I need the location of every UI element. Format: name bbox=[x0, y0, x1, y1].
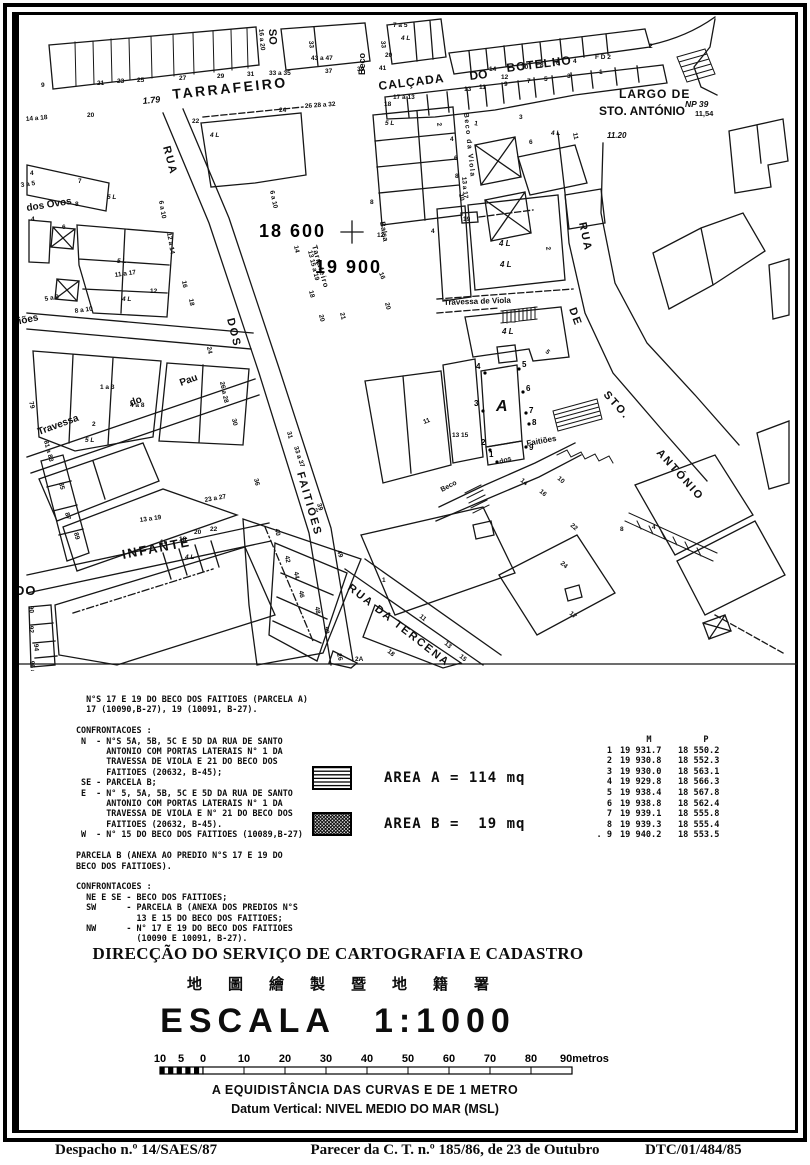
map-number: 13 bbox=[464, 86, 472, 93]
street-label: 11.20 bbox=[607, 131, 627, 140]
street-label: Travessa bbox=[36, 413, 80, 438]
scale-bar-checker bbox=[177, 1067, 181, 1074]
map-number: 25 bbox=[137, 77, 145, 84]
street-label: A bbox=[495, 398, 508, 415]
map-number: 46 bbox=[297, 590, 305, 599]
street-label: STO. ANTÓNIO bbox=[599, 103, 685, 118]
map-number: 44 bbox=[292, 571, 300, 580]
scale-bar-checker bbox=[164, 1067, 168, 1074]
coord-row: 419 929.818 566.3 bbox=[594, 777, 734, 788]
map-number: 2 bbox=[435, 122, 443, 127]
map-number: 22 bbox=[569, 522, 579, 532]
survey-point-dot bbox=[524, 411, 527, 414]
scale-tick-label: 40 bbox=[361, 1053, 373, 1065]
map-number: 11 bbox=[418, 613, 428, 623]
map-number: 4 L bbox=[209, 132, 219, 139]
scale-tick-label: 10 bbox=[238, 1053, 250, 1065]
map-number: 2 bbox=[544, 246, 552, 251]
map-number: 5 L bbox=[107, 194, 116, 201]
map-number: 43 a 47 bbox=[311, 55, 333, 62]
map-number: 3 bbox=[567, 73, 571, 80]
map-number: 5 L bbox=[117, 258, 126, 265]
point-label: 3 bbox=[474, 399, 479, 408]
map-number: 10 bbox=[521, 64, 529, 71]
scale-bar-checker bbox=[190, 1067, 194, 1074]
footer-parecer: Parecer da C. T. n.º 185/86, de 23 de Ou… bbox=[255, 1142, 655, 1159]
map-number: 79 bbox=[27, 401, 36, 410]
scale-bar-checker bbox=[194, 1067, 198, 1074]
map-number: 1 bbox=[474, 120, 479, 128]
street-label: Travessa de Viola bbox=[444, 296, 512, 307]
legend-row-area-b: AREA B = 19 mq bbox=[312, 812, 582, 836]
map-number: 22 bbox=[192, 118, 200, 125]
map-number: 26 bbox=[335, 653, 344, 662]
map-number: 26 a 28 bbox=[218, 381, 229, 404]
street-label: TARRAFEIRO bbox=[172, 74, 289, 102]
map-number: 21 bbox=[97, 80, 105, 87]
survey-point-dot bbox=[517, 367, 520, 370]
map-number: 24 bbox=[559, 560, 569, 570]
map-labels: TARRAFEIRO1.79CALÇADADOBOTELHOLARGO DEST… bbox=[19, 22, 714, 671]
cadastral-map: TARRAFEIRO1.79CALÇADADOBOTELHOLARGO DEST… bbox=[19, 15, 797, 671]
map-number: 13 bbox=[443, 640, 453, 650]
coord-row: 119 931.718 550.2 bbox=[594, 746, 734, 757]
map-number: 22 bbox=[210, 526, 218, 533]
map-number: 6 bbox=[556, 60, 560, 67]
map-number: 13 a 19 bbox=[139, 514, 162, 524]
map-number: 6 bbox=[454, 155, 458, 162]
map-number: 12 a 14 bbox=[165, 232, 176, 255]
map-number: 10 bbox=[556, 475, 566, 485]
scale-title: ESCALA1:1000 bbox=[8, 1002, 668, 1041]
point-label: 4 bbox=[476, 362, 481, 371]
map-number: 4 bbox=[30, 170, 34, 177]
map-number: 12 bbox=[501, 74, 509, 81]
survey-point-dot bbox=[483, 371, 486, 374]
col-header-p: P bbox=[678, 735, 734, 746]
map-number: 42 bbox=[283, 555, 291, 564]
map-number: 87 bbox=[63, 512, 72, 521]
scale-bar-checker bbox=[186, 1067, 190, 1074]
map-number: 6 a 10 bbox=[157, 200, 167, 219]
map-number: 18 bbox=[179, 536, 187, 543]
coord-row: 619 938.818 562.4 bbox=[594, 799, 734, 810]
map-number: 3 a 5 bbox=[20, 180, 36, 189]
point-label: 7 bbox=[529, 406, 534, 415]
map-number: 14 bbox=[519, 477, 529, 487]
cadastral-sheet: TARRAFEIRO1.79CALÇADADOBOTELHOLARGO DEST… bbox=[0, 0, 810, 1165]
organization-title-chinese: 地圖繪製暨地籍署 bbox=[8, 973, 668, 994]
map-number: 94 bbox=[32, 644, 40, 652]
map-number: 2A bbox=[355, 656, 364, 663]
map-number: 92 bbox=[27, 626, 35, 634]
map-number: 16 a 20 bbox=[257, 29, 266, 52]
street-label: SO bbox=[266, 29, 279, 46]
map-number: 27 bbox=[179, 75, 187, 82]
scale-bar-checker bbox=[160, 1067, 164, 1074]
street-label: 11,54 bbox=[695, 109, 714, 118]
area-a-label: AREA A = 114 mq bbox=[384, 770, 525, 786]
map-number: 4 bbox=[573, 58, 577, 65]
coord-row: 819 939.318 555.4 bbox=[594, 820, 734, 831]
map-number: 50 bbox=[322, 626, 330, 635]
map-number: 48 bbox=[313, 606, 321, 615]
map-number: 21 bbox=[338, 312, 347, 321]
area-b-label: AREA B = 19 mq bbox=[384, 816, 525, 832]
scale-tick-label: 60 bbox=[443, 1053, 455, 1065]
map-number: 5 a 9 bbox=[44, 293, 60, 302]
map-number: 13 15 bbox=[452, 432, 469, 439]
street-label: DE bbox=[566, 306, 584, 328]
legend-row-area-a: AREA A = 114 mq bbox=[312, 766, 582, 790]
map-number: 11 bbox=[422, 417, 431, 426]
point-label: 2 bbox=[481, 438, 486, 447]
map-number: 20 bbox=[385, 52, 393, 59]
map-number: 33 bbox=[379, 41, 387, 49]
map-number: F D 2 bbox=[595, 54, 611, 61]
survey-point-dot bbox=[521, 390, 524, 393]
map-number: 31 bbox=[285, 431, 294, 440]
area-a-hatch-swatch bbox=[312, 766, 352, 790]
scale-bar-checker bbox=[173, 1067, 177, 1074]
map-number: 96 a bbox=[28, 661, 36, 671]
street-label: CALÇADA bbox=[378, 71, 446, 93]
survey-point-dot bbox=[527, 422, 530, 425]
title-block: DIRECÇÃO DO SERVIÇO DE CARTOGRAFIA E CAD… bbox=[8, 944, 668, 1041]
street-label: DO bbox=[19, 583, 37, 598]
scale-bar: 1050102030405060708090metros bbox=[148, 1048, 628, 1082]
map-number: 23 bbox=[117, 78, 125, 85]
map-number: 90 bbox=[27, 606, 35, 614]
map-number: 9 bbox=[504, 81, 508, 88]
map-number: 4 bbox=[431, 228, 435, 235]
street-label: dos Ovos bbox=[26, 196, 73, 214]
map-number: 39 bbox=[357, 66, 365, 73]
survey-point-dot bbox=[524, 445, 527, 448]
coord-row: . 919 940.218 553.5 bbox=[594, 830, 734, 841]
survey-point-dot bbox=[481, 409, 484, 412]
map-number: 26 28 a 32 bbox=[305, 101, 337, 110]
coord-row: 219 930.818 552.3 bbox=[594, 756, 734, 767]
map-number: 89 bbox=[72, 532, 81, 541]
organization-title: DIRECÇÃO DO SERVIÇO DE CARTOGRAFIA E CAD… bbox=[8, 944, 668, 964]
map-number: 7 a 5 bbox=[393, 22, 408, 29]
map-number: 4 bbox=[31, 216, 35, 223]
map-number: 16 bbox=[160, 539, 168, 546]
map-number: 11 bbox=[571, 132, 579, 140]
grid-label: 18 600 bbox=[259, 221, 326, 241]
map-number: 18 bbox=[307, 290, 316, 299]
map-number: 4 L bbox=[501, 327, 514, 336]
map-number: 23 a 27 bbox=[204, 493, 227, 504]
point-label: 5 bbox=[522, 360, 527, 369]
grid-label: 19 900 bbox=[315, 257, 382, 277]
map-number: 12 bbox=[150, 288, 158, 295]
map-number: 4 L bbox=[121, 296, 131, 303]
map-number: 33 bbox=[307, 41, 315, 49]
scale-tick-label: 70 bbox=[484, 1053, 496, 1065]
footer-despacho: Despacho n.º 14/SAES/87 bbox=[55, 1142, 217, 1159]
map-number: 24 bbox=[205, 346, 213, 355]
map-number: 17 bbox=[568, 610, 578, 620]
col-header-m: M bbox=[620, 735, 678, 746]
map-number: 3 bbox=[519, 114, 523, 121]
map-number: 8 bbox=[370, 199, 374, 206]
street-label: STO. bbox=[601, 389, 632, 422]
scale-tick-label: 50 bbox=[402, 1053, 414, 1065]
map-number: 7 bbox=[78, 178, 82, 185]
map-number: 20 bbox=[87, 112, 95, 119]
map-number: 33 a 37 bbox=[292, 445, 305, 468]
map-number: 6 bbox=[62, 224, 66, 231]
street-label: 1.79 bbox=[142, 94, 160, 106]
coord-row: 719 939.118 555.8 bbox=[594, 809, 734, 820]
map-number: 40 bbox=[273, 528, 281, 537]
map-number: 12 bbox=[377, 232, 385, 239]
map-number: 5 bbox=[544, 76, 548, 83]
map-number: 4 bbox=[652, 524, 656, 531]
map-number: 20 bbox=[383, 302, 392, 311]
street-label: NP 39 bbox=[685, 99, 709, 109]
street-label: RUA bbox=[160, 145, 179, 177]
street-label: Beco bbox=[440, 480, 458, 494]
street-label: DOS bbox=[224, 317, 243, 349]
map-number: 37 bbox=[325, 68, 333, 75]
street-label: tiões bbox=[19, 312, 40, 328]
map-number: 4 a 8 bbox=[130, 402, 145, 409]
street-label: Pau bbox=[178, 372, 199, 389]
map-number: 1 a 3 bbox=[100, 384, 115, 391]
datum-note: Datum Vertical: NIVEL MEDIO DO MAR (MSL) bbox=[35, 1102, 695, 1116]
map-number: 29 bbox=[217, 73, 225, 80]
map-number: 4 L bbox=[550, 130, 560, 137]
point-label: 8 bbox=[532, 418, 537, 427]
grid-cross-icon bbox=[341, 221, 363, 243]
map-number: 14 bbox=[489, 66, 497, 73]
map-number: 24 bbox=[279, 107, 287, 114]
map-number: 19 bbox=[463, 216, 471, 223]
map-number: 5 bbox=[544, 348, 552, 356]
map-number: 17 a 13 bbox=[393, 94, 415, 101]
map-number: 31 bbox=[247, 71, 255, 78]
legend: AREA A = 114 mq AREA B = 19 mq bbox=[312, 766, 582, 858]
map-number: 20 bbox=[317, 314, 326, 323]
map-number: 4 L bbox=[184, 554, 194, 561]
map-number: 8 bbox=[75, 201, 79, 208]
map-number: 14 a 18 bbox=[26, 114, 49, 123]
map-number: 1 bbox=[382, 577, 386, 584]
map-number: 16 bbox=[538, 488, 548, 498]
scale-bar-checker bbox=[169, 1067, 173, 1074]
map-number: 41 bbox=[379, 65, 387, 72]
survey-point-dot bbox=[488, 448, 491, 451]
map-number: 18 bbox=[384, 101, 392, 108]
map-number: 16 bbox=[180, 280, 188, 289]
map-number: 4 L bbox=[498, 239, 511, 248]
coord-row: 319 930.018 563.1 bbox=[594, 767, 734, 778]
map-number: 2 bbox=[649, 43, 653, 50]
street-label: LARGO DE bbox=[619, 87, 690, 101]
escala-label: ESCALA bbox=[160, 1002, 336, 1040]
map-number: 20 bbox=[194, 529, 202, 536]
map-number: 5 L bbox=[85, 437, 94, 444]
map-number: 1 bbox=[599, 69, 603, 76]
scale-tick-label: 0 bbox=[200, 1053, 206, 1065]
map-number: 30 bbox=[230, 418, 238, 427]
scale-bar-body bbox=[203, 1067, 572, 1074]
scale-tick-label: 5 bbox=[178, 1053, 184, 1065]
scale-tick-label: 80 bbox=[525, 1053, 537, 1065]
scale-bar-checker bbox=[199, 1067, 203, 1074]
map-number: 6 a 10 bbox=[268, 190, 279, 210]
street-label: dos bbox=[498, 455, 512, 466]
map-number: 8 bbox=[540, 62, 544, 69]
map-number: 9 bbox=[41, 82, 45, 89]
coord-table-header: M P bbox=[594, 735, 734, 746]
map-number: 33 a 35 bbox=[269, 70, 291, 77]
map-number: 4 L bbox=[400, 35, 410, 42]
map-number: 6 bbox=[529, 139, 533, 146]
escala-value: 1:1000 bbox=[374, 1002, 516, 1040]
map-number: 4 bbox=[450, 136, 454, 143]
map-number: 14 bbox=[292, 245, 300, 254]
point-label: 6 bbox=[526, 384, 531, 393]
equidistance-note: A EQUIDISTÂNCIA DAS CURVAS E DE 1 METRO bbox=[35, 1083, 695, 1097]
map-number: 18 bbox=[187, 298, 195, 307]
point-label: 9 bbox=[529, 443, 534, 452]
map-number: 8 a 10 bbox=[74, 305, 93, 315]
map-number: 8 bbox=[455, 173, 459, 180]
map-number: 2 bbox=[92, 421, 96, 428]
map-number: 7 bbox=[527, 78, 531, 85]
survey-point-dot bbox=[495, 460, 498, 463]
coord-row: 519 938.418 567.8 bbox=[594, 788, 734, 799]
scale-tick-label: 10 bbox=[154, 1053, 166, 1065]
map-number: 11 bbox=[479, 84, 486, 91]
map-number: 8 bbox=[620, 526, 624, 533]
survey-coordinates-table: M P 119 931.718 550.2219 930.818 552.331… bbox=[594, 735, 734, 841]
footer-reference: DTC/01/484/85 bbox=[645, 1142, 742, 1159]
scale-end-label: 90metros bbox=[560, 1053, 609, 1065]
street-label: DO bbox=[469, 67, 489, 83]
scale-tick-label: 30 bbox=[320, 1053, 332, 1065]
map-number: 11 a 17 bbox=[114, 269, 136, 279]
scale-tick-label: 20 bbox=[279, 1053, 291, 1065]
map-number: 4 L bbox=[499, 260, 512, 269]
area-b-hatch-swatch bbox=[312, 812, 352, 836]
scale-bar-checker bbox=[182, 1067, 186, 1074]
map-number: 85 bbox=[57, 482, 66, 491]
map-number: 5 L bbox=[385, 120, 394, 127]
map-number: 36 bbox=[252, 478, 261, 487]
